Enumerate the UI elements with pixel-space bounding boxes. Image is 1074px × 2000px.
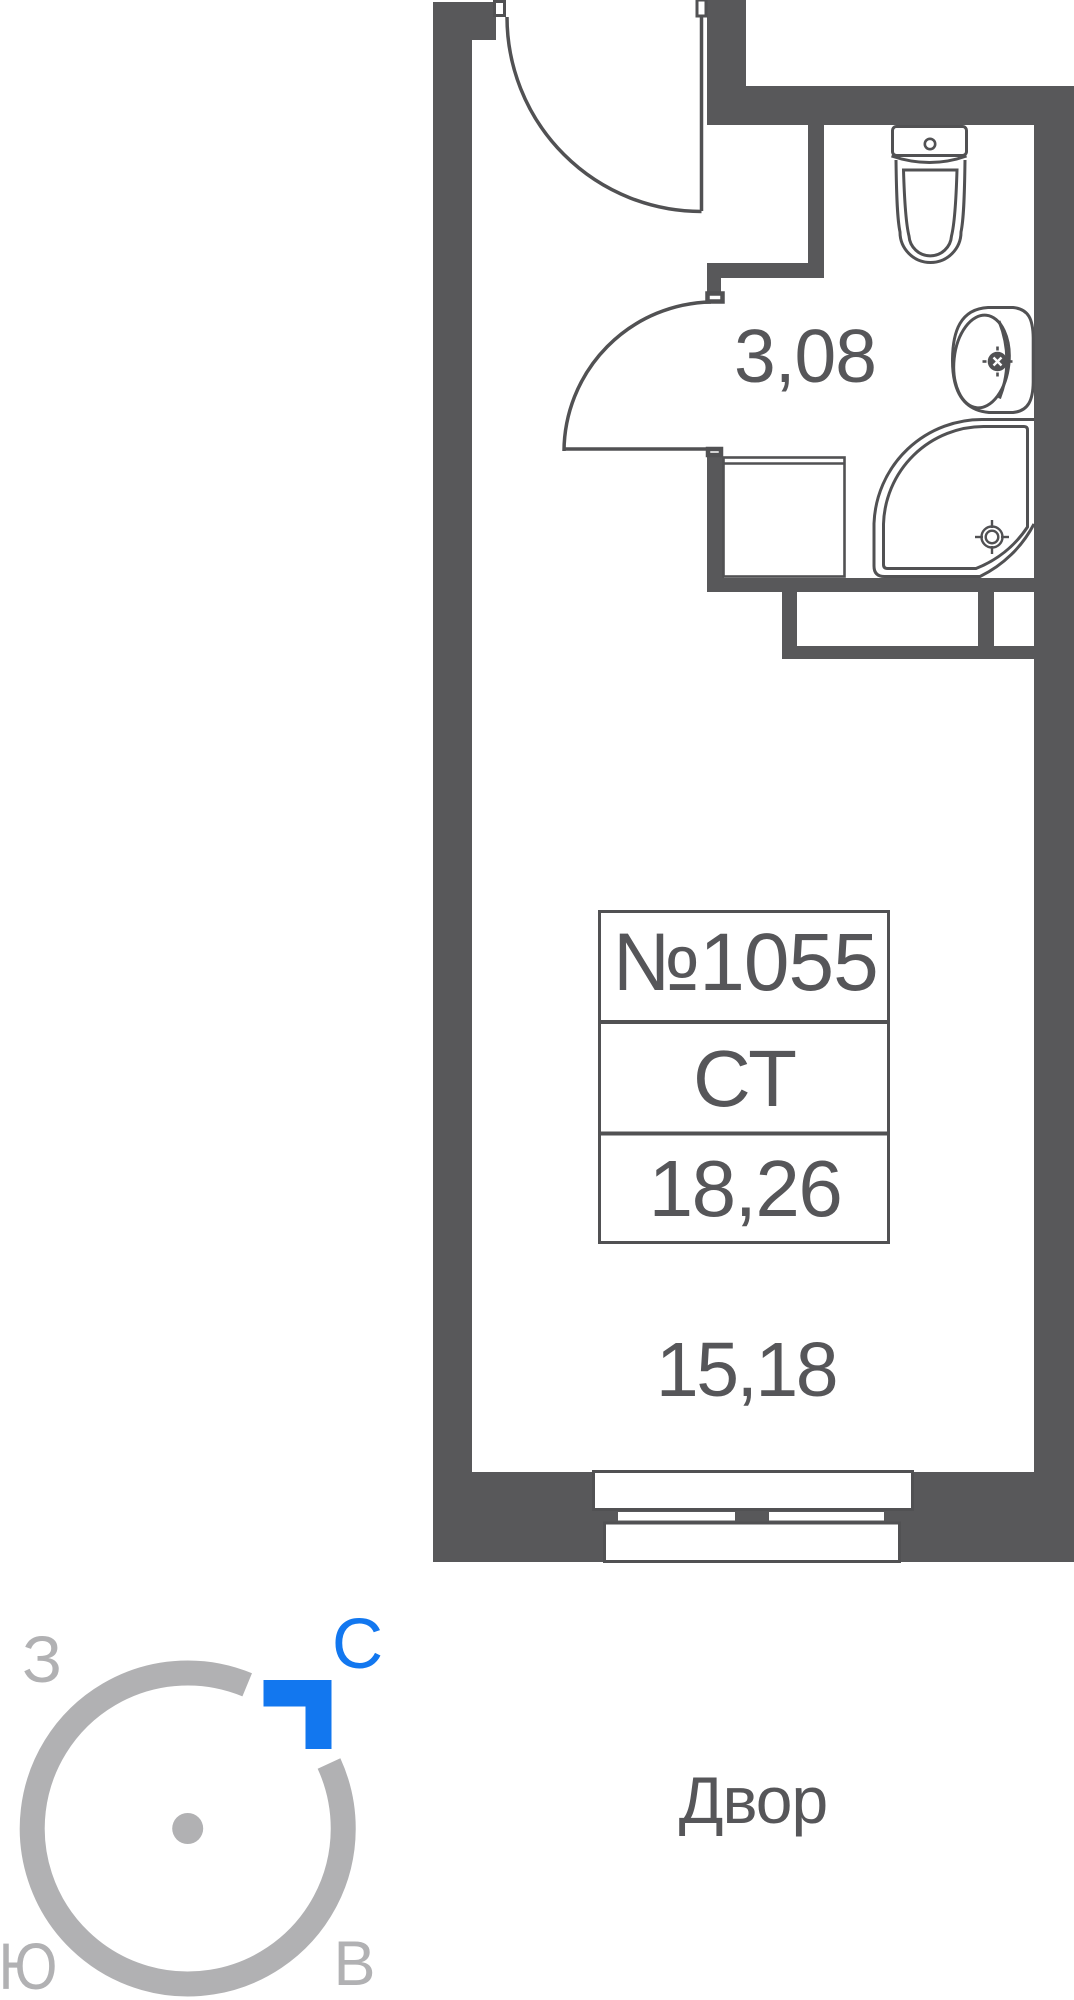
svg-text:В: В — [333, 1929, 375, 1999]
svg-text:З: З — [22, 1622, 62, 1696]
svg-text:3,08: 3,08 — [734, 314, 876, 398]
svg-text:Двор: Двор — [679, 1763, 827, 1837]
svg-text:С: С — [332, 1605, 383, 1684]
svg-text:15,18: 15,18 — [656, 1327, 836, 1413]
svg-text:Ю: Ю — [0, 1929, 58, 2000]
svg-text:18,26: 18,26 — [649, 1144, 842, 1233]
svg-text:СТ: СТ — [693, 1034, 797, 1123]
svg-text:№1055: №1055 — [612, 917, 877, 1008]
